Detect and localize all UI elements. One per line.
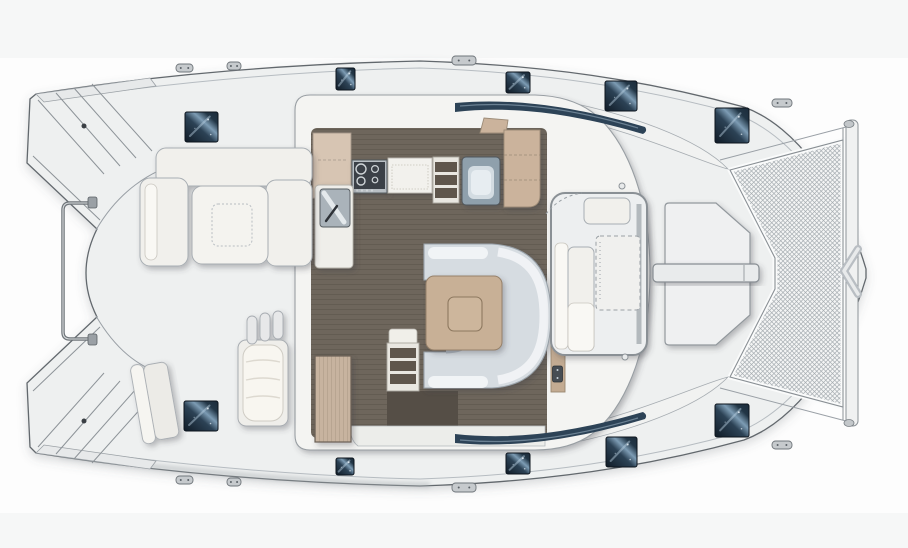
wardrobe	[315, 356, 351, 442]
deck-hatch	[715, 108, 749, 143]
deck-hatch	[605, 81, 637, 111]
deck-cleat	[227, 478, 241, 486]
companionway-starboard	[433, 157, 459, 203]
top-band	[0, 0, 908, 58]
deck-hatch	[185, 112, 218, 142]
bow-fitting	[844, 121, 854, 128]
deck-cleat	[227, 62, 241, 70]
galley-counter	[388, 158, 432, 193]
galley-cabinet-forward	[504, 130, 540, 207]
lounge-seat-right	[266, 180, 312, 266]
bench-cushion	[243, 345, 283, 421]
alcove-seat-cushion	[568, 303, 594, 351]
deck-cleat	[772, 99, 792, 107]
rail-fitting	[88, 197, 97, 208]
cockpit-table	[192, 186, 268, 264]
dinette-table	[426, 276, 502, 350]
deck-hatch	[506, 72, 530, 93]
deck-plug	[82, 124, 87, 129]
cushion-stack	[247, 311, 283, 344]
entry-mat	[387, 391, 458, 428]
alcove-seat-top	[584, 198, 630, 224]
forward-door	[596, 236, 640, 310]
prep-sink-unit	[315, 185, 353, 268]
deck-hatch	[606, 437, 637, 467]
deck-hatch	[506, 453, 530, 474]
deck-hatch	[715, 404, 749, 437]
alcove-seat-back	[555, 243, 568, 349]
deck-vent	[619, 183, 625, 189]
mast-beam	[653, 264, 759, 282]
deck-plug	[82, 419, 87, 424]
cockpit-lounge	[140, 148, 312, 266]
lounge-bolster	[145, 184, 157, 260]
deck-plan-svg	[0, 0, 908, 548]
deck-cleat	[452, 483, 476, 492]
stove-top	[352, 160, 387, 193]
deck-cleat	[176, 64, 193, 72]
deck-cleat	[772, 441, 792, 449]
rail-fitting	[88, 334, 97, 345]
galley-sink	[462, 157, 500, 205]
deck-hatch	[336, 458, 354, 475]
deck-hatch	[336, 68, 355, 90]
companionway-port	[387, 329, 419, 391]
deck-vent	[622, 354, 628, 360]
catamaran-floor-plan	[0, 0, 908, 548]
deck-cleat	[452, 56, 476, 65]
bottom-band	[0, 513, 908, 548]
deck-cleat	[176, 476, 193, 484]
deck-hatch	[184, 401, 218, 431]
bow-fitting	[844, 420, 854, 427]
